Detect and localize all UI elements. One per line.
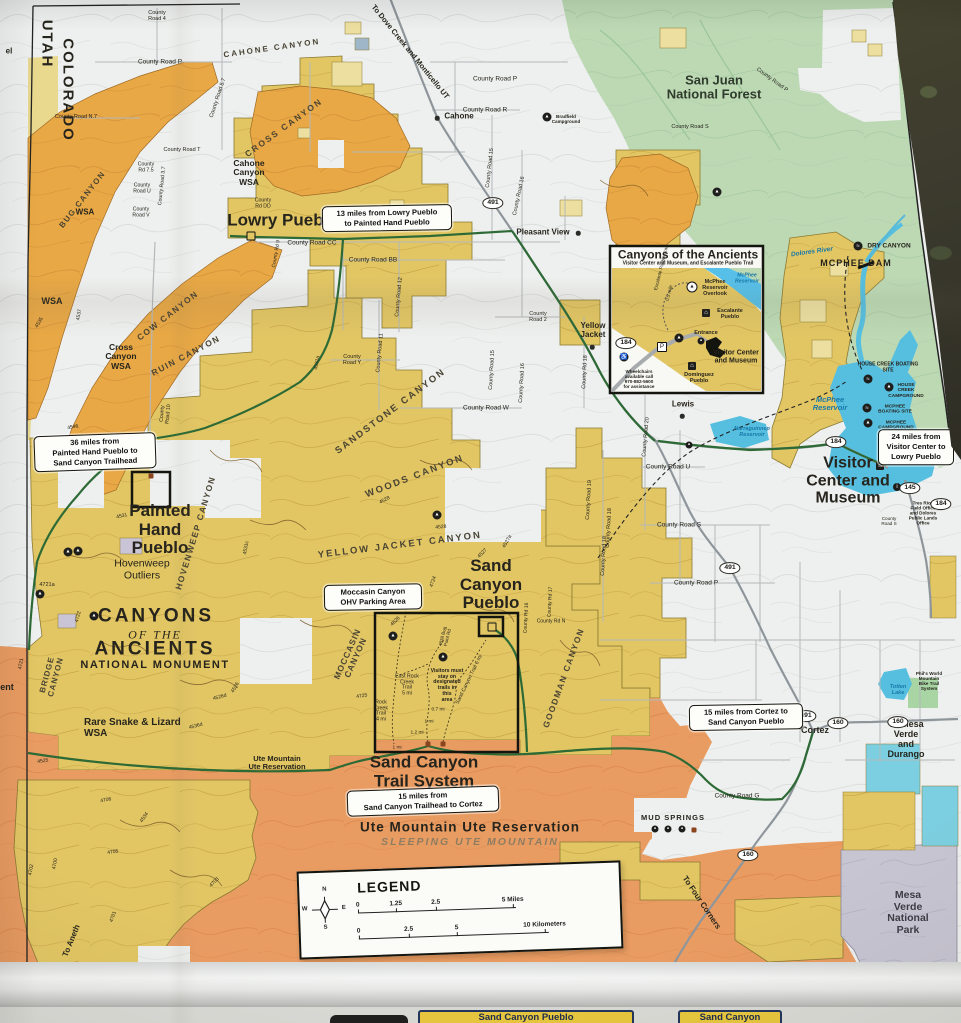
photo-of-paper-map: UTAHCOLORADOelentCounty Road PCounty Roa… <box>0 0 961 1023</box>
legend-title: LEGEND <box>357 877 422 895</box>
compass-rose: N E S W <box>309 894 340 925</box>
scale-tick <box>396 908 397 912</box>
scale-tick <box>545 929 546 933</box>
next-panel-title: Sand Canyon and Rock Creek <box>678 1010 782 1023</box>
scale-tick <box>409 934 410 938</box>
scale-line <box>359 932 549 940</box>
compass-icon <box>309 894 340 925</box>
compass-w: W <box>302 906 308 912</box>
scale-tick <box>436 907 437 911</box>
next-panel-dark-bar <box>330 1015 408 1023</box>
scale-tick-label: 1.25 <box>389 900 402 907</box>
scale-tick <box>513 904 514 908</box>
scale-tick-label: 5 <box>455 924 459 931</box>
compass-e: E <box>342 905 346 911</box>
compass-s: S <box>323 925 327 931</box>
scale-tick <box>358 910 359 914</box>
scale-tick <box>457 932 458 936</box>
next-panel-strip: Sand Canyon PuebloSand Canyon and Rock C… <box>0 1007 961 1023</box>
map-paper: UTAHCOLORADOelentCounty Road PCounty Roa… <box>0 0 961 1023</box>
scale-tick-label: 10 Kilometers <box>523 920 566 928</box>
scale-bar-miles: 01.252.55 Miles <box>358 892 516 914</box>
scale-tick <box>359 936 360 940</box>
scale-tick-label: 2.5 <box>431 899 440 906</box>
compass-n: N <box>322 887 327 893</box>
legend-box: N E S W LEGEND 01.252.55 Miles 02.5510 K… <box>297 860 624 959</box>
paper-fold-edge <box>0 962 961 1008</box>
scale-tick-label: 5 Miles <box>502 896 524 904</box>
scale-tick-label: 0 <box>356 902 360 909</box>
next-panel-title: Sand Canyon Pueblo <box>418 1010 634 1023</box>
scale-tick-label: 2.5 <box>404 926 413 933</box>
scale-bar-kilometers: 02.5510 Kilometers <box>358 917 548 940</box>
inset-box <box>610 246 763 393</box>
scale-tick-label: 0 <box>357 927 361 934</box>
